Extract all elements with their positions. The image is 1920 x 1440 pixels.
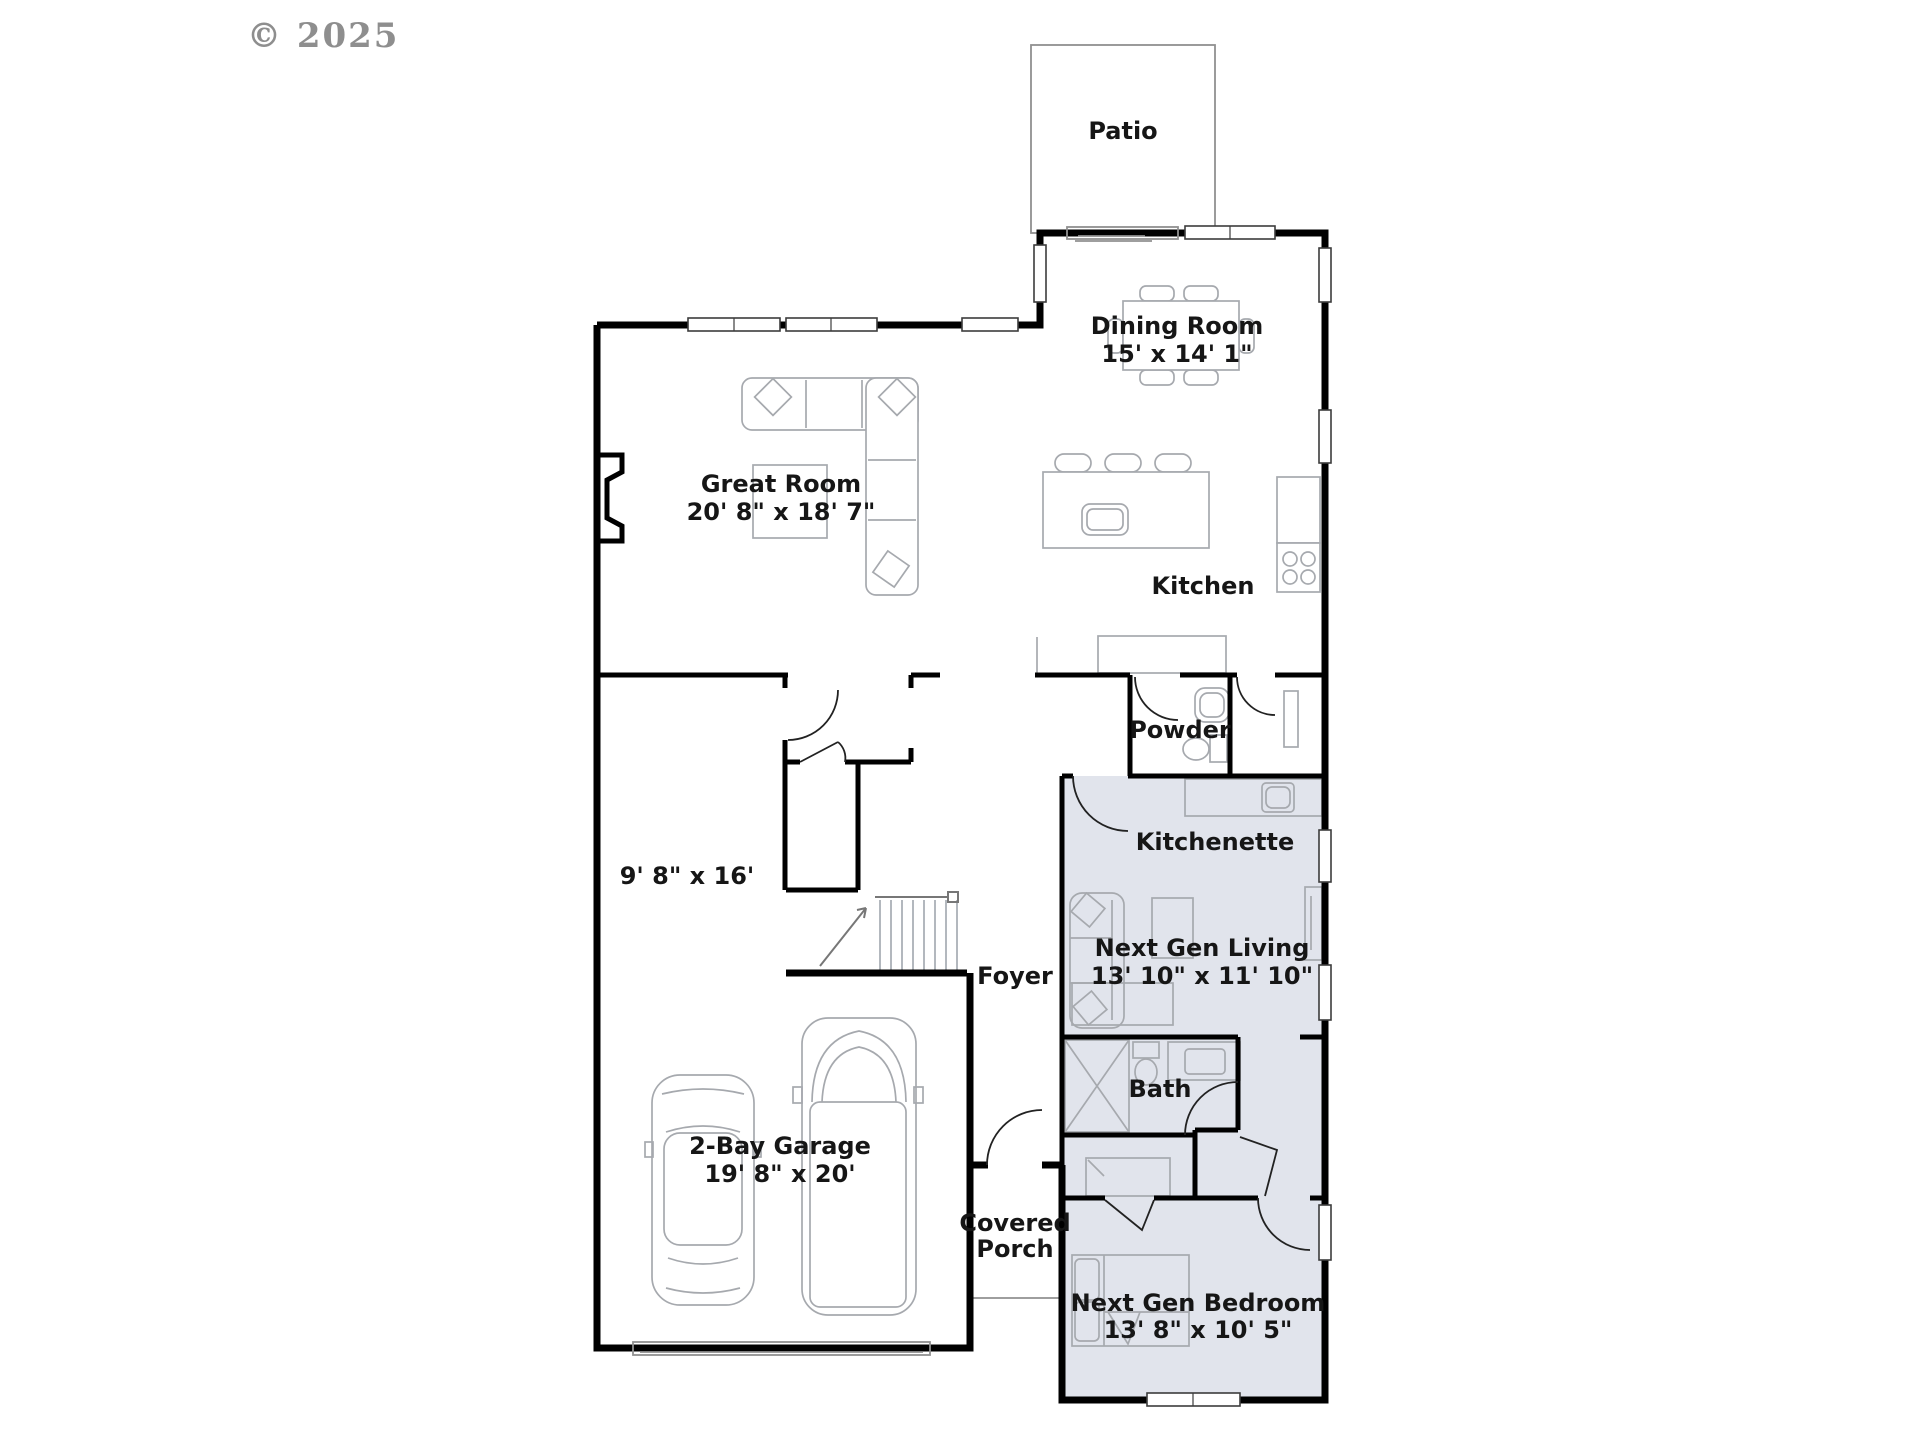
- room-dims-flex-bay: 9' 8" x 16': [620, 862, 755, 890]
- room-label-powder: Powder: [1129, 716, 1231, 744]
- floor-plan-page: © 2025 Patio Dining Room 15' x 14' 1" Gr…: [0, 0, 1920, 1440]
- room-label-dining: Dining Room: [1091, 312, 1264, 340]
- room-dims-next-gen-living: 13' 10" x 11' 10": [1091, 962, 1313, 990]
- garage-car-sedan: [645, 1075, 761, 1305]
- room-label-great-room: Great Room: [701, 470, 861, 498]
- room-label-next-gen-bedroom: Next Gen Bedroom: [1071, 1289, 1326, 1317]
- room-label-patio: Patio: [1088, 117, 1157, 145]
- room-label-covered-porch-2: Porch: [976, 1235, 1053, 1263]
- room-label-bath: Bath: [1128, 1075, 1191, 1103]
- room-label-kitchen: Kitchen: [1152, 572, 1255, 600]
- room-label-garage: 2-Bay Garage: [689, 1132, 871, 1160]
- staircase: [820, 892, 958, 970]
- fireplace: [597, 455, 622, 541]
- copyright-text: © 2025: [247, 16, 399, 56]
- room-dims-next-gen-bedroom: 13' 8" x 10' 5": [1104, 1316, 1293, 1344]
- room-label-foyer: Foyer: [977, 962, 1053, 990]
- room-dims-garage: 19' 8" x 20': [704, 1160, 855, 1188]
- room-dims-great-room: 20' 8" x 18' 7": [687, 498, 876, 526]
- floor-plan-drawing: © 2025 Patio Dining Room 15' x 14' 1" Gr…: [0, 0, 1920, 1440]
- room-label-covered-porch-1: Covered: [959, 1209, 1070, 1237]
- pantry-shelf: [1284, 691, 1298, 747]
- kitchen-island-and-range: [1037, 454, 1320, 673]
- room-dims-dining: 15' x 14' 1": [1101, 340, 1252, 368]
- room-label-kitchenette: Kitchenette: [1136, 828, 1294, 856]
- room-label-next-gen-living: Next Gen Living: [1095, 934, 1310, 962]
